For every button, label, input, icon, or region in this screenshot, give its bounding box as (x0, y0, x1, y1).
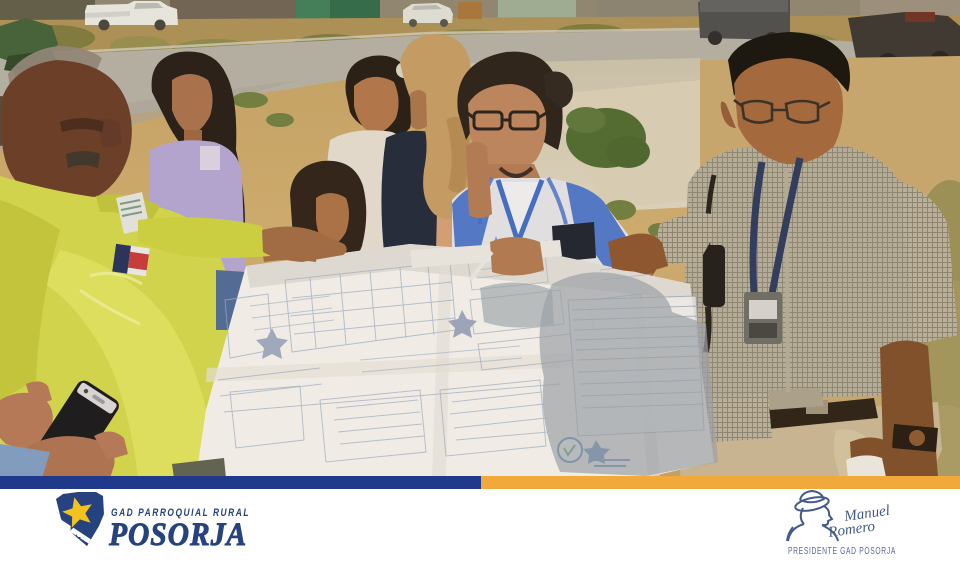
svg-text:POSORJA: POSORJA (108, 517, 247, 553)
svg-text:PRESIDENTE GAD POSORJA: PRESIDENTE GAD POSORJA (788, 546, 896, 557)
